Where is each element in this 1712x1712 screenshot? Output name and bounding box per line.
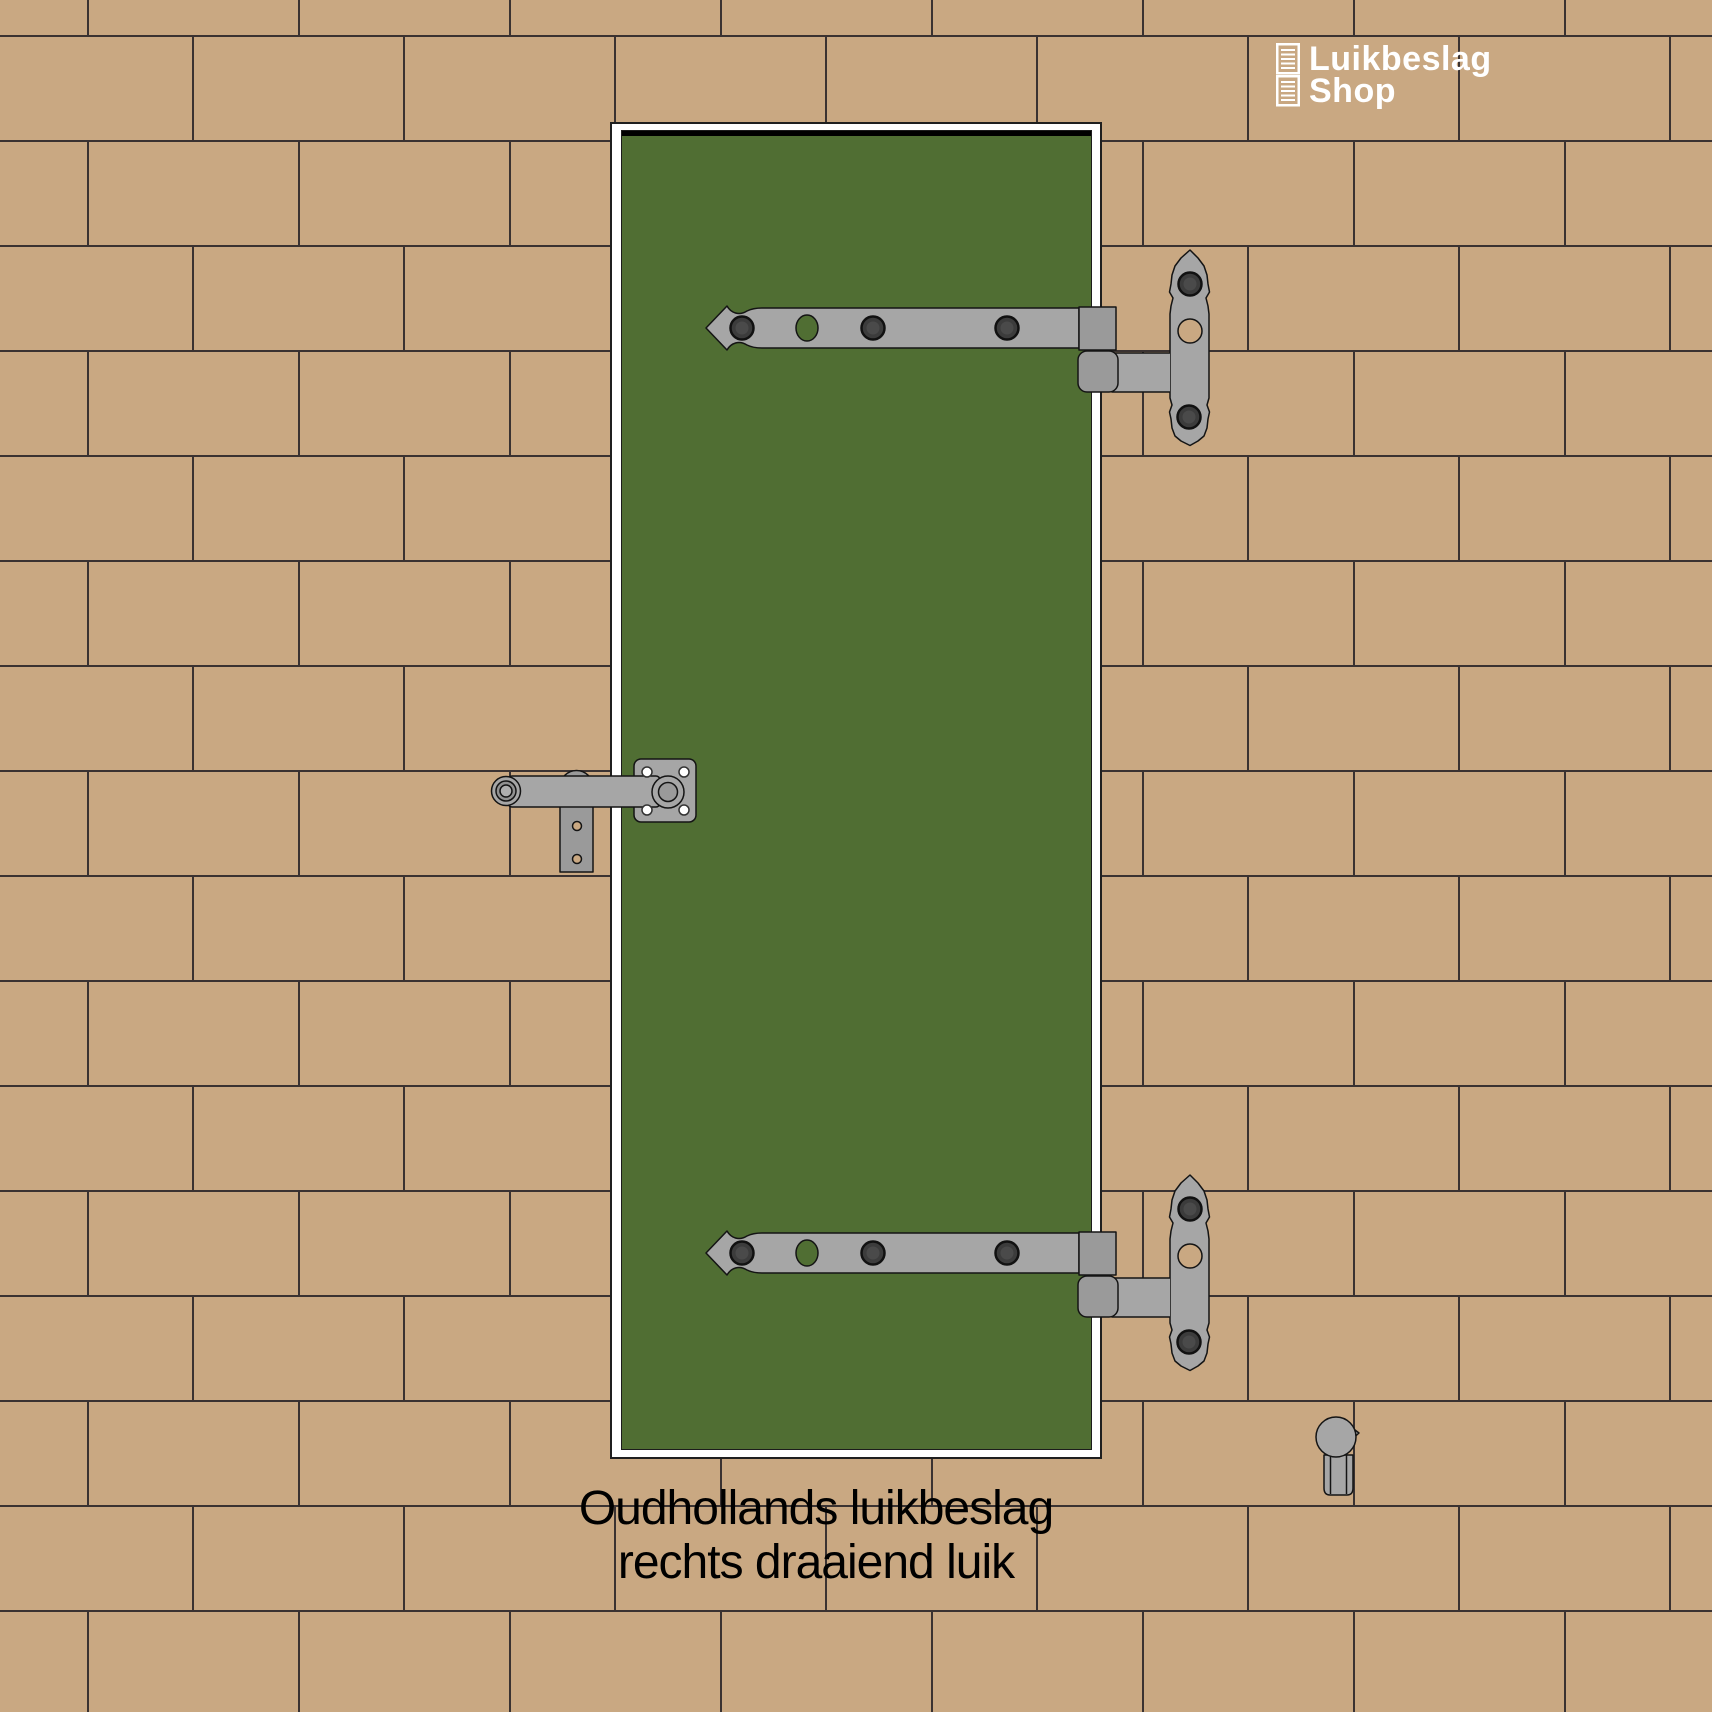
scene: Luikbeslag Shop Oudhollands luikbeslag r… <box>0 0 1712 1712</box>
loose-pintle <box>1316 1417 1359 1495</box>
catch-pin <box>659 783 678 802</box>
bottom-hinge <box>706 1175 1210 1371</box>
caption: Oudhollands luikbeslag rechts draaiend l… <box>416 1482 1216 1590</box>
strap-end-block <box>1079 307 1116 350</box>
plate-screw <box>642 805 652 815</box>
strap-bolt <box>731 317 754 340</box>
catch-screw-hole <box>573 822 582 831</box>
shutter-louvers-icon <box>1276 43 1300 107</box>
plate-bolt <box>1179 273 1202 296</box>
catch-eye-ring-inner <box>500 785 512 797</box>
catch-arm <box>508 776 660 807</box>
shutter-catch <box>492 759 697 872</box>
pintle-body <box>1324 1455 1353 1495</box>
plate-bolt <box>1178 406 1201 429</box>
caption-line-2: rechts draaiend luik <box>416 1536 1216 1590</box>
plate-screw <box>642 767 652 777</box>
logo-subtitle: Shop <box>1309 75 1492 107</box>
plate-screw <box>679 767 689 777</box>
hinge-arm <box>1112 353 1170 392</box>
plate-open-hole <box>1178 319 1202 343</box>
plate-screw <box>679 805 689 815</box>
logo-title: Luikbeslag <box>1309 43 1492 75</box>
hinge-strap <box>706 306 1079 350</box>
pintle-head <box>1316 1417 1356 1457</box>
strap-bolt <box>862 317 885 340</box>
hinge-knuckle <box>1078 351 1118 392</box>
catch-screw-hole <box>573 855 582 864</box>
logo-text: Luikbeslag Shop <box>1309 43 1492 107</box>
logo: Luikbeslag Shop <box>1276 43 1492 107</box>
strap-bolt <box>996 317 1019 340</box>
top-hinge <box>706 250 1210 446</box>
caption-line-1: Oudhollands luikbeslag <box>416 1482 1216 1536</box>
strap-empty-hole <box>796 315 818 341</box>
hardware-layer <box>0 0 1712 1712</box>
